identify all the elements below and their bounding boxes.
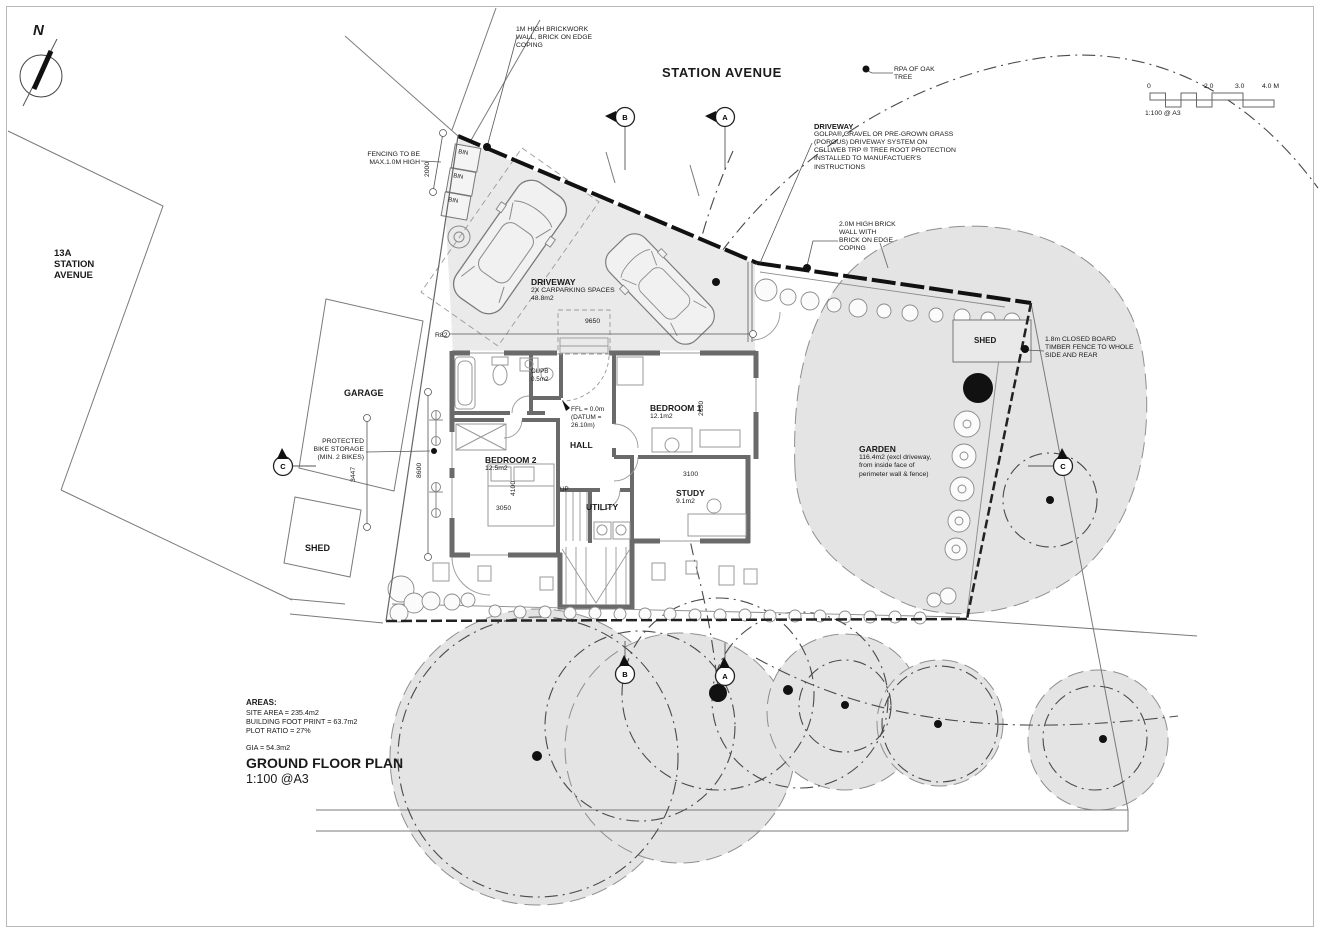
dim-r82: R82 [435,332,447,340]
scale-tick-2: 2.0 [1204,83,1213,91]
dim-3447: 3447 [350,467,358,482]
dim-4100: 4100 [510,481,518,496]
ffl-note: FFL = 0.0m(DATUM =26.10m) [571,406,604,429]
bike-storage [429,411,443,518]
svg-text:C: C [1060,462,1066,471]
dim-8600: 8600 [416,463,424,478]
drawing-scale: 1:100 @A3 [246,772,309,787]
bedroom2-label: BEDROOM 2 12.5m2 [485,455,536,473]
neighbor-parcel-label: 13ASTATIONAVENUE [54,249,94,282]
dim-3050: 3050 [496,505,511,513]
svg-text:A: A [722,672,728,681]
shed-left-outline [284,497,361,577]
bin-label-1: BIN [457,149,468,158]
timber-fence-note: 1.8m CLOSED BOARDTIMBER FENCE TO WHOLESI… [1045,336,1134,360]
scale-bar-note: 1:100 @ A3 [1145,110,1181,118]
scale-tick-3: 3.0 [1235,83,1244,91]
garden-tree-trunk [963,373,993,403]
bin-label-3: BIN [447,197,458,206]
north-arrow [20,39,62,106]
section-marker-b-top: B [605,108,635,171]
brick-wall-2m-note: 2.0M HIGH BRICKWALL WITH BRICK ON EDGECO… [839,221,896,254]
drawing-sheet: B A B A C C [0,0,1320,933]
section-marker-a-top: A [705,108,735,171]
shed-right-label: SHED [974,336,996,346]
cupboard-label: CUPB0.5m2 [531,368,549,383]
drawing-title: GROUND FLOOR PLAN [246,755,403,772]
bin-label-2: BIN [452,173,463,182]
north-label: N [33,22,44,40]
shed-left-label: SHED [305,543,330,554]
bedroom1-label: BEDROOM 1 12.1m2 [650,403,701,421]
brickwork-note: 1M HIGH BRICKWORKWALL, BRICK ON EDGECOPI… [516,26,592,50]
driveway-spec-leader [760,143,812,263]
garden-label: GARDEN 116.4m2 (excl driveway,from insid… [859,444,931,479]
rpa-note: RPA OF OAKTREE [894,66,935,82]
dim-2000: 2000 [424,162,432,177]
brickwork-leader [487,36,517,147]
dim-3100: 3100 [683,471,698,479]
rpa-leader [866,70,893,73]
up-label: UP [560,486,569,494]
svg-text:B: B [622,113,628,122]
wall2m-leader [807,241,838,266]
study-label: STUDY 9.1m2 [676,488,705,506]
tree-trunk-dot [532,751,542,761]
hall-label: HALL [570,440,593,450]
scale-bar [1150,93,1274,107]
areas-block: AREAS: SITE AREA = 235.4m2 BUILDING FOOT… [246,698,357,752]
driveway-spec-note: DRIVEWAY GOLPA® GRAVEL OR PRE-GROWN GRAS… [814,122,956,172]
driveway-label: DRIVEWAY 2X CARPARKING SPACES48.8m2 [531,277,615,304]
svg-text:C: C [280,462,286,471]
rear-boundary [386,619,967,621]
garage-label: GARAGE [344,388,384,399]
utility-label: UTILITY [586,502,618,512]
bike-storage-note: PROTECTEDBIKE STORAGE(MIN. 2 BIKES) [308,438,364,462]
scale-tick-4: 4.0 M [1262,83,1279,91]
fencing-note: FENCING TO BEMAX.1.0M HIGH [360,151,420,167]
svg-text:A: A [722,113,728,122]
dim-2650: 2650 [698,401,706,416]
site-plan-svg: B A B A C C [0,0,1320,933]
scale-tick-0: 0 [1147,83,1151,91]
street-title: STATION AVENUE [662,65,782,81]
svg-text:B: B [622,670,628,679]
dim-9650: 9650 [585,318,600,326]
